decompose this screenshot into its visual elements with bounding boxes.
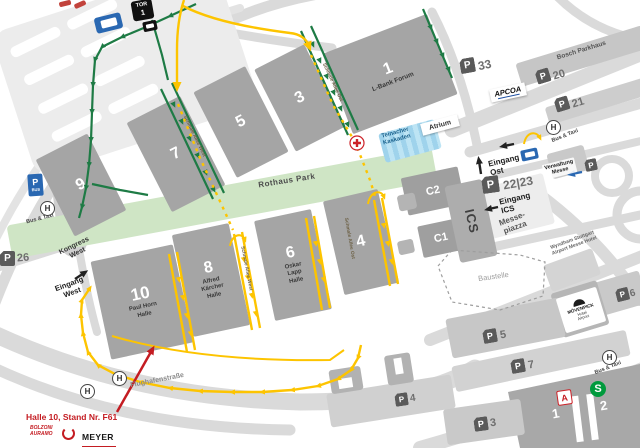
hall-10-number: 10	[129, 283, 151, 304]
parking-p26-icon: P	[0, 251, 15, 266]
meyer-underline	[82, 446, 116, 448]
parking-p26-number: 26	[17, 251, 30, 264]
hall-6-name-line3: Halle	[289, 276, 305, 286]
tor-1-number: 1	[140, 8, 146, 17]
platform-1-number: 1	[551, 405, 561, 421]
apcoa-sign: APCOA	[489, 82, 527, 102]
airport-terminal-icon: A	[556, 389, 573, 406]
bolzoni-auramo-logo: BOLZONI AURAMO	[30, 426, 53, 437]
service-building-2	[384, 352, 414, 386]
hall-3-number: 3	[292, 89, 307, 107]
bus-icon	[100, 17, 117, 29]
hall-10-name-line2: Halle	[137, 310, 153, 320]
first-aid-icon	[350, 136, 364, 150]
bolzoni-swoosh-icon	[62, 427, 75, 440]
road-closed-mark-1	[59, 0, 72, 7]
atrium-label: Atrium	[420, 114, 460, 135]
parking-p22-23-icon: P	[481, 175, 500, 194]
hall-4: 4	[323, 189, 399, 295]
hall-6-oskar-lapp-halle: 6 Oskar Lapp Halle	[254, 209, 332, 321]
hall-4-number: 4	[355, 233, 367, 251]
bus-taxi-arrow	[504, 144, 514, 146]
c-annex-2	[397, 238, 416, 255]
hall-5-number: 5	[233, 113, 248, 131]
stand-note: Halle 10, Stand Nr. F61	[26, 412, 117, 422]
parking-bus-sign: P BUS	[27, 174, 43, 197]
platform-2-number: 2	[599, 397, 609, 413]
hall-1-number: 1	[381, 60, 395, 78]
flughafenstrasse-label: Flughafenstraße	[130, 372, 185, 389]
hall-6-number: 6	[284, 244, 296, 262]
hall-c2-number: C2	[425, 184, 441, 198]
service-building-1	[328, 366, 363, 395]
bus-stop-h-icon: H	[546, 120, 561, 135]
hall-8-name-line3: Halle	[207, 291, 223, 301]
eingang-west-label: Eingang West	[54, 275, 88, 301]
tor-1-sign: TOR 1	[130, 0, 154, 22]
parking-p4-number: 4	[409, 393, 416, 405]
hall-9-number: 9	[73, 176, 88, 194]
baustelle-label: Baustelle	[478, 270, 510, 283]
bus-icon	[146, 23, 155, 29]
shuttle-bus-sign	[520, 147, 539, 161]
hall-8-number: 8	[202, 259, 214, 277]
hall-1-lbank-forum: 1 L-Bank Forum	[322, 14, 457, 134]
bus-icon	[524, 151, 535, 158]
eingang-ost-arrow	[479, 161, 481, 174]
sbahn-icon: S	[590, 381, 606, 397]
parking-p33-number: 33	[477, 57, 493, 73]
meyer-logo: MEYER	[82, 427, 116, 447]
hall-c1-number: C1	[433, 231, 449, 245]
messe-stuttgart-site-map: C2 C1 ICS 9 7 5 3 1 L-Bank Forum 10 Paul…	[0, 0, 640, 448]
eingang-ost-label: Eingang Ost	[487, 153, 522, 178]
bus-stop-h-icon: H	[112, 371, 127, 386]
bosch-parkhaus-building	[515, 25, 640, 87]
hall-7-number: 7	[168, 145, 183, 163]
bus-stop-h-icon: H	[80, 384, 95, 399]
parking-p33-icon: P	[459, 57, 476, 74]
